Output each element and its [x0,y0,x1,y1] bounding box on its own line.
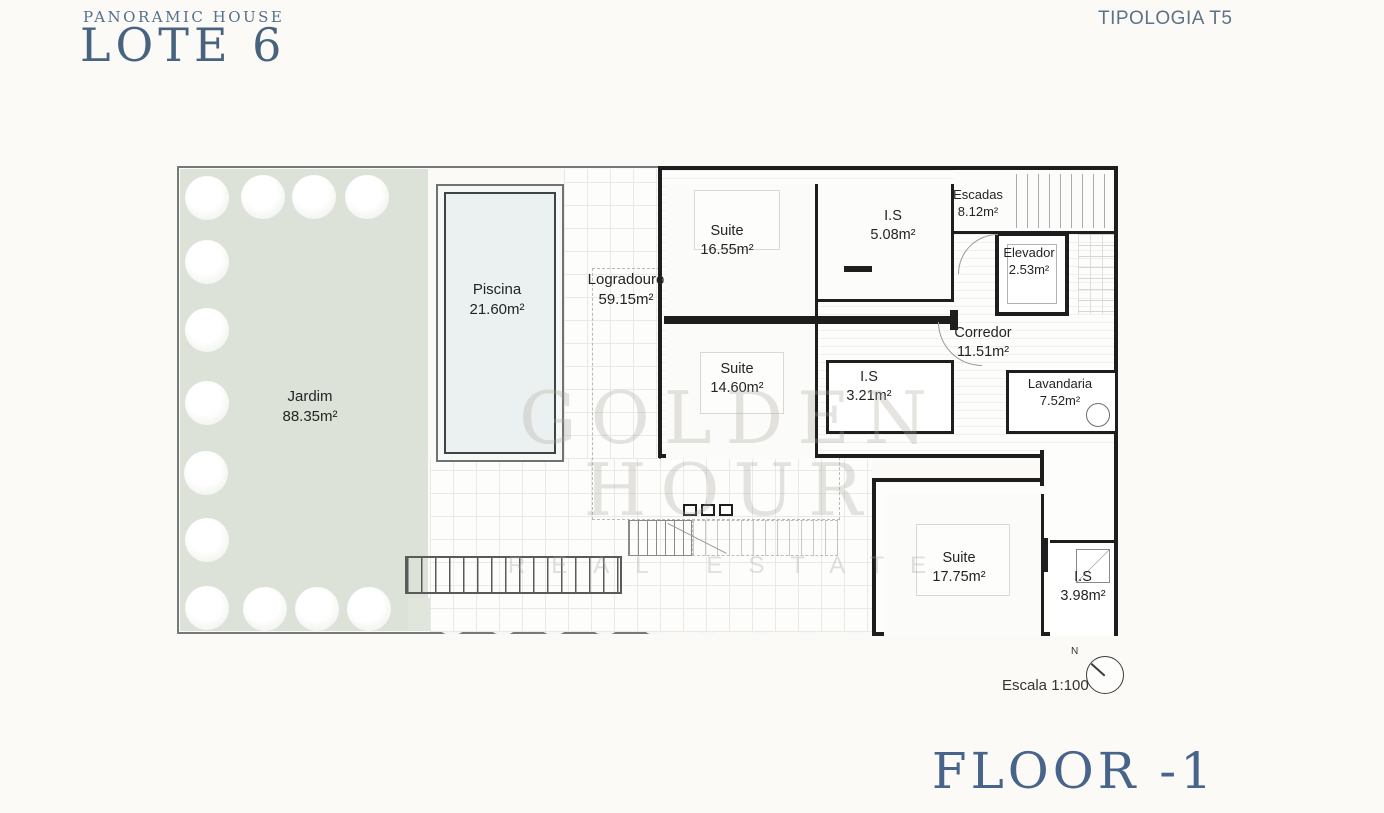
room-area: 59.15m² [588,290,665,310]
door-leaf [1042,538,1048,572]
pool [444,192,556,454]
room-label-logradouro: Logradouro 59.15m² [588,270,665,310]
shaft-dashed-zone [1078,234,1114,314]
wing-connector-hall [1040,450,1118,486]
room-name: Elevador [1003,244,1054,261]
room-area: 88.35m² [282,407,337,427]
room-area: 3.98m² [1060,587,1105,606]
tree-icon [185,308,229,352]
room-label-is-2: I.S 3.21m² [846,368,891,406]
building-lower-wing [872,478,1118,636]
room-area: 7.52m² [1028,392,1092,409]
room-name: Lavandaria [1028,375,1092,392]
tree-icon [184,451,228,495]
room-label-elevador: Elevador 2.53m² [1003,244,1054,278]
room-area: 2.53m² [1003,261,1054,278]
tree-icon [292,175,336,219]
room-area: 3.21m² [846,387,891,406]
deck-steps-hatch [405,556,622,594]
room-label-escadas: Escadas 8.12m² [953,186,1003,220]
tree-icon [347,587,391,631]
room-label-suite-3: Suite 17.75m² [932,549,985,587]
room-label-is-1: I.S 5.08m² [870,207,915,245]
room-name: Suite [932,549,985,568]
exterior-stairs [628,520,692,556]
stairs-hatch [1016,174,1110,228]
room-label-is-3: I.S 3.98m² [1060,568,1105,606]
tree-icon [185,381,229,425]
interior-wall [664,316,958,324]
stair-landing-block [701,504,715,516]
room-area: 16.55m² [700,241,753,260]
room-name: Escadas [953,186,1003,203]
room-area: 8.12m² [953,203,1003,220]
room-label-corredor: Corredor 11.51m² [954,324,1011,362]
room-name: I.S [1060,568,1105,587]
tree-icon [185,518,229,562]
room-name: Suite [700,222,753,241]
tree-icon [185,176,229,220]
stair-landing-block [719,504,733,516]
floor-title: FLOOR -1 [900,742,1216,800]
tree-icon [185,586,229,630]
room-label-suite-1: Suite 16.55m² [700,222,753,260]
lot-title: LOTE 6 [80,18,286,72]
room-name: I.S [870,207,915,226]
floorplan-sheet: { "header": { "project_name": "PANORAMIC… [0,0,1384,813]
room-label-suite-2: Suite 14.60m² [710,360,763,398]
tree-icon [241,175,285,219]
tree-icon [243,587,287,631]
room-name: Jardim [282,387,337,407]
room-label-lavandaria: Lavandaria 7.52m² [1028,375,1092,409]
room-name: Piscina [469,280,524,300]
room-area: 11.51m² [954,343,1011,362]
door-threshold [844,266,872,272]
stairs-above-dashed [692,520,838,556]
north-label: N [1071,646,1078,657]
room-area: 21.60m² [469,300,524,320]
tree-icon [185,240,229,284]
room-label-piscina: Piscina 21.60m² [469,280,524,320]
room-name: I.S [846,368,891,387]
stair-landing-block [683,504,697,516]
room-name: Corredor [954,324,1011,343]
room-label-jardim: Jardim 88.35m² [282,387,337,427]
door-swing-arc [958,234,998,274]
tree-icon [345,175,389,219]
room-name: Logradouro [588,270,665,290]
compass-needle [1091,663,1105,676]
typology-label: TIPOLOGIA T5 [1098,8,1232,30]
tree-icon [295,587,339,631]
room-area: 17.75m² [932,568,985,587]
room-name: Suite [710,360,763,379]
compass-icon [1086,656,1124,694]
room-area: 5.08m² [870,226,915,245]
scale-label: Escala 1:100 [1002,677,1089,694]
room-area: 14.60m² [710,379,763,398]
